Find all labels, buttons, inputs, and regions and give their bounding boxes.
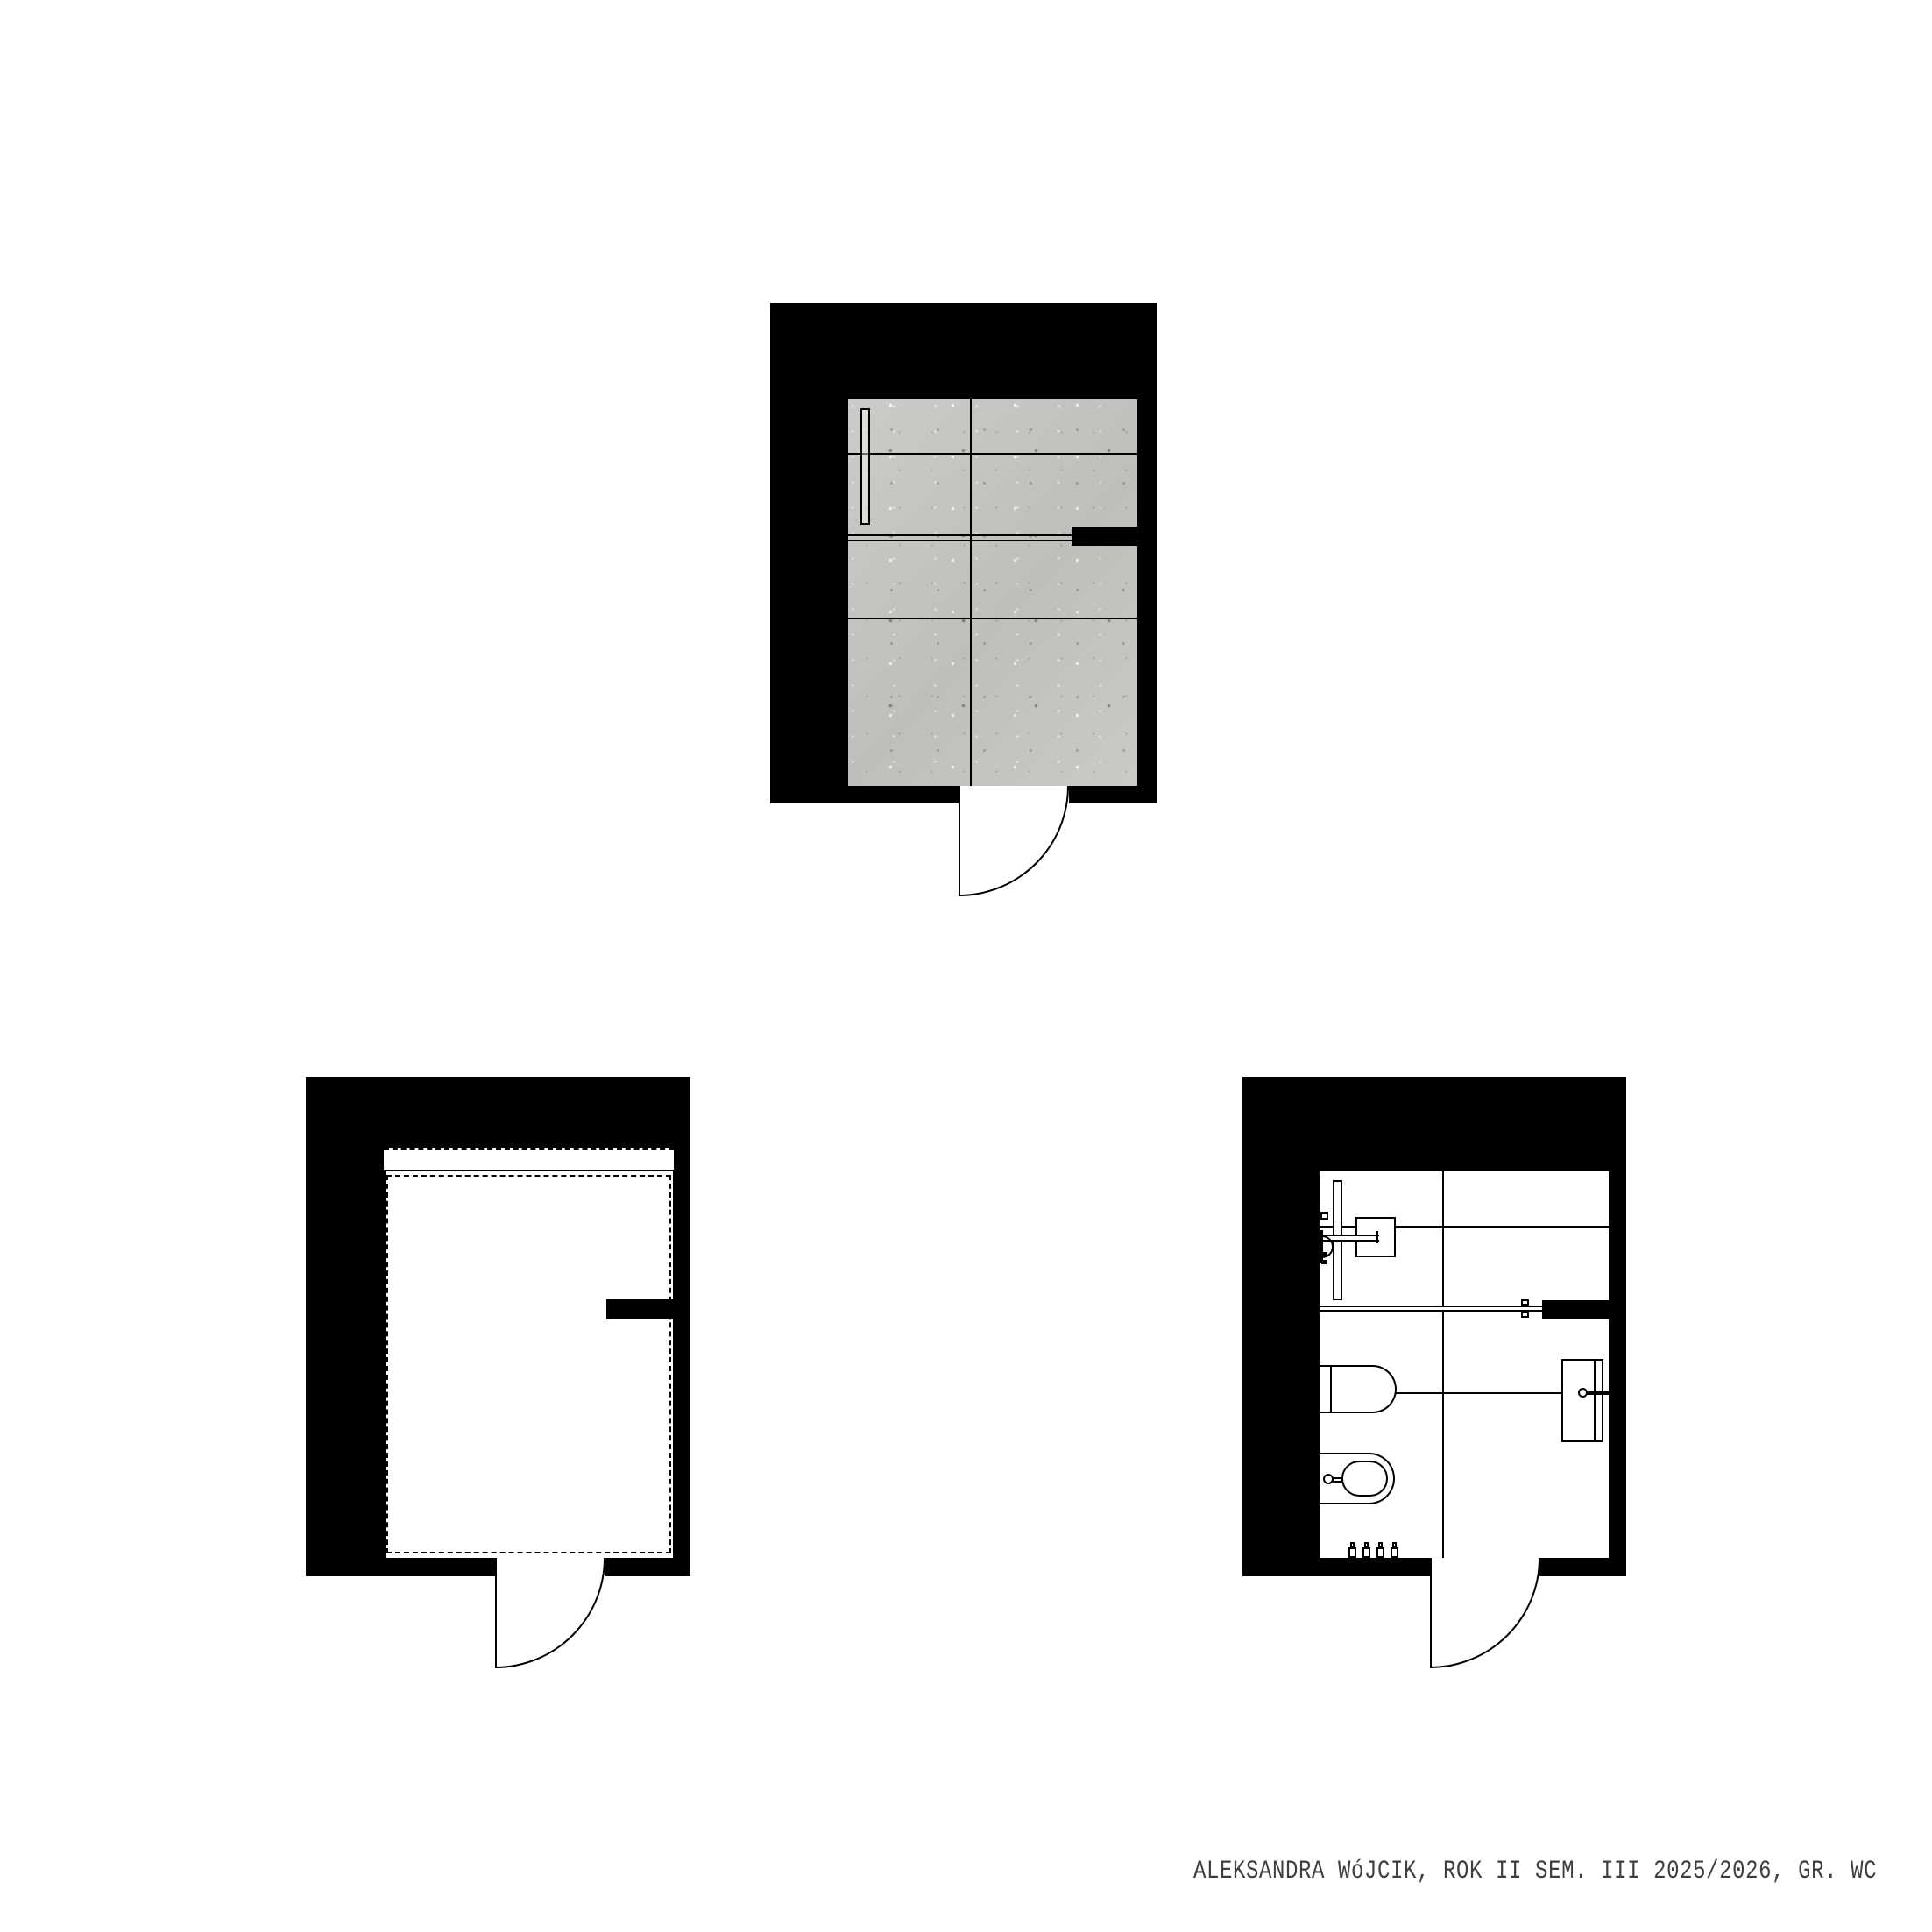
supply-valve-cap	[1378, 1542, 1383, 1548]
glass-partition	[1320, 1306, 1542, 1312]
drawing-sheet: ALEKSANDRA WóJCIK, ROK II SEM. III 2025/…	[0, 0, 1932, 1932]
supply-valve	[1376, 1547, 1384, 1558]
faucet-tip	[1578, 1388, 1588, 1398]
tile-joint	[1442, 1171, 1444, 1558]
footer-caption: ALEKSANDRA WóJCIK, ROK II SEM. III 2025/…	[1193, 1858, 1877, 1886]
supply-valve-cap	[1392, 1542, 1397, 1548]
floor-finishes-plan	[770, 303, 1157, 803]
ceiling-plan	[306, 1077, 690, 1576]
tile-floor	[848, 399, 1137, 786]
supply-valve-cap	[1350, 1542, 1355, 1548]
partition-clamp	[1521, 1299, 1529, 1306]
glass-partition	[848, 534, 1072, 541]
wc-back-line	[1330, 1365, 1332, 1413]
partition-wall-stub	[606, 1299, 673, 1319]
door-swing	[1430, 1558, 1540, 1668]
partition-wall-stub	[1072, 527, 1137, 546]
flush-knob-stem	[1333, 1477, 1342, 1483]
tile-joint	[848, 618, 1137, 619]
partition-clamp	[1521, 1312, 1529, 1318]
door-swing	[959, 786, 1069, 896]
suspended-ceiling-outline	[386, 1175, 671, 1553]
bidet-bowl	[1341, 1461, 1388, 1497]
supply-valve	[1391, 1547, 1398, 1558]
door-swing	[495, 1558, 605, 1668]
supply-valve	[1362, 1547, 1370, 1558]
washbasin	[1561, 1359, 1603, 1442]
fixtures-plan	[1242, 1077, 1626, 1576]
fixtures-room	[1320, 1171, 1609, 1558]
linear-drain	[860, 408, 870, 525]
ceiling-cove-band	[384, 1148, 674, 1171]
shower-arm-end	[1376, 1231, 1378, 1243]
shower-mixer-knob	[1321, 1260, 1327, 1264]
tile-joint	[848, 453, 1137, 455]
washbasin-edge-line	[1594, 1359, 1596, 1442]
supply-valve	[1348, 1547, 1356, 1558]
shower-mixer-box	[1320, 1212, 1328, 1220]
tile-joint	[970, 399, 972, 786]
shower-mixer-knob	[1321, 1252, 1327, 1257]
supply-valve-cap	[1364, 1542, 1369, 1548]
partition-wall-stub	[1542, 1300, 1609, 1319]
